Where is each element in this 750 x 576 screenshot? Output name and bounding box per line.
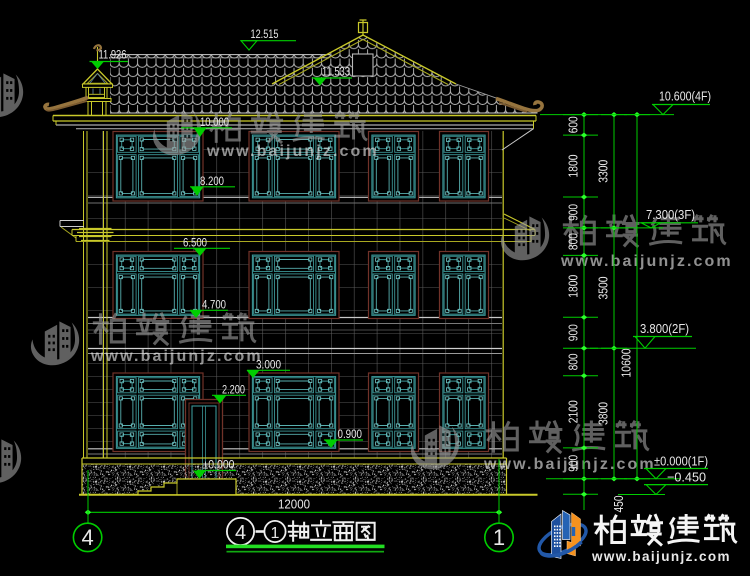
svg-text:11.533: 11.533	[322, 65, 350, 79]
svg-text:3500: 3500	[596, 277, 611, 300]
svg-text:3.000: 3.000	[256, 357, 281, 371]
svg-text:11.926: 11.926	[99, 48, 127, 62]
svg-text:900: 900	[566, 204, 581, 221]
svg-text:www.baijunjz.com: www.baijunjz.com	[90, 348, 263, 365]
svg-text:4: 4	[81, 525, 93, 550]
svg-text:900: 900	[566, 455, 581, 472]
svg-text:±0.000(1F): ±0.000(1F)	[654, 454, 708, 469]
svg-text:8.200: 8.200	[200, 174, 224, 188]
svg-text:3800: 3800	[596, 402, 611, 425]
svg-text:450: 450	[611, 496, 626, 513]
svg-text:0.900: 0.900	[338, 427, 363, 441]
svg-text:3300: 3300	[596, 160, 611, 183]
svg-text:12.515: 12.515	[251, 27, 279, 41]
svg-text:1800: 1800	[566, 275, 581, 298]
svg-text:12000: 12000	[278, 498, 310, 512]
svg-text:2100: 2100	[566, 400, 581, 423]
svg-text:www.baijunjz.com: www.baijunjz.com	[591, 549, 731, 564]
svg-text:600: 600	[566, 116, 581, 133]
svg-text:1800: 1800	[566, 155, 581, 178]
svg-text:4: 4	[235, 522, 246, 544]
svg-text:900: 900	[566, 324, 581, 341]
svg-text:3.800(2F): 3.800(2F)	[640, 321, 689, 336]
svg-text:10.000: 10.000	[200, 115, 229, 129]
svg-text:4.700: 4.700	[202, 297, 226, 311]
svg-text:1: 1	[493, 525, 505, 550]
svg-text:800: 800	[566, 233, 581, 250]
svg-text:www.baijunjz.com: www.baijunjz.com	[206, 143, 379, 160]
svg-text:±0.000: ±0.000	[203, 457, 235, 471]
svg-text:1: 1	[271, 525, 280, 542]
svg-text:6.500: 6.500	[183, 235, 207, 249]
svg-text:7.300(3F): 7.300(3F)	[646, 207, 695, 222]
svg-text:−0.450: −0.450	[667, 470, 706, 485]
svg-text:2.200: 2.200	[222, 382, 245, 396]
svg-text:10600: 10600	[619, 349, 634, 378]
svg-text:10.600(4F): 10.600(4F)	[659, 89, 711, 104]
svg-text:800: 800	[566, 353, 581, 370]
